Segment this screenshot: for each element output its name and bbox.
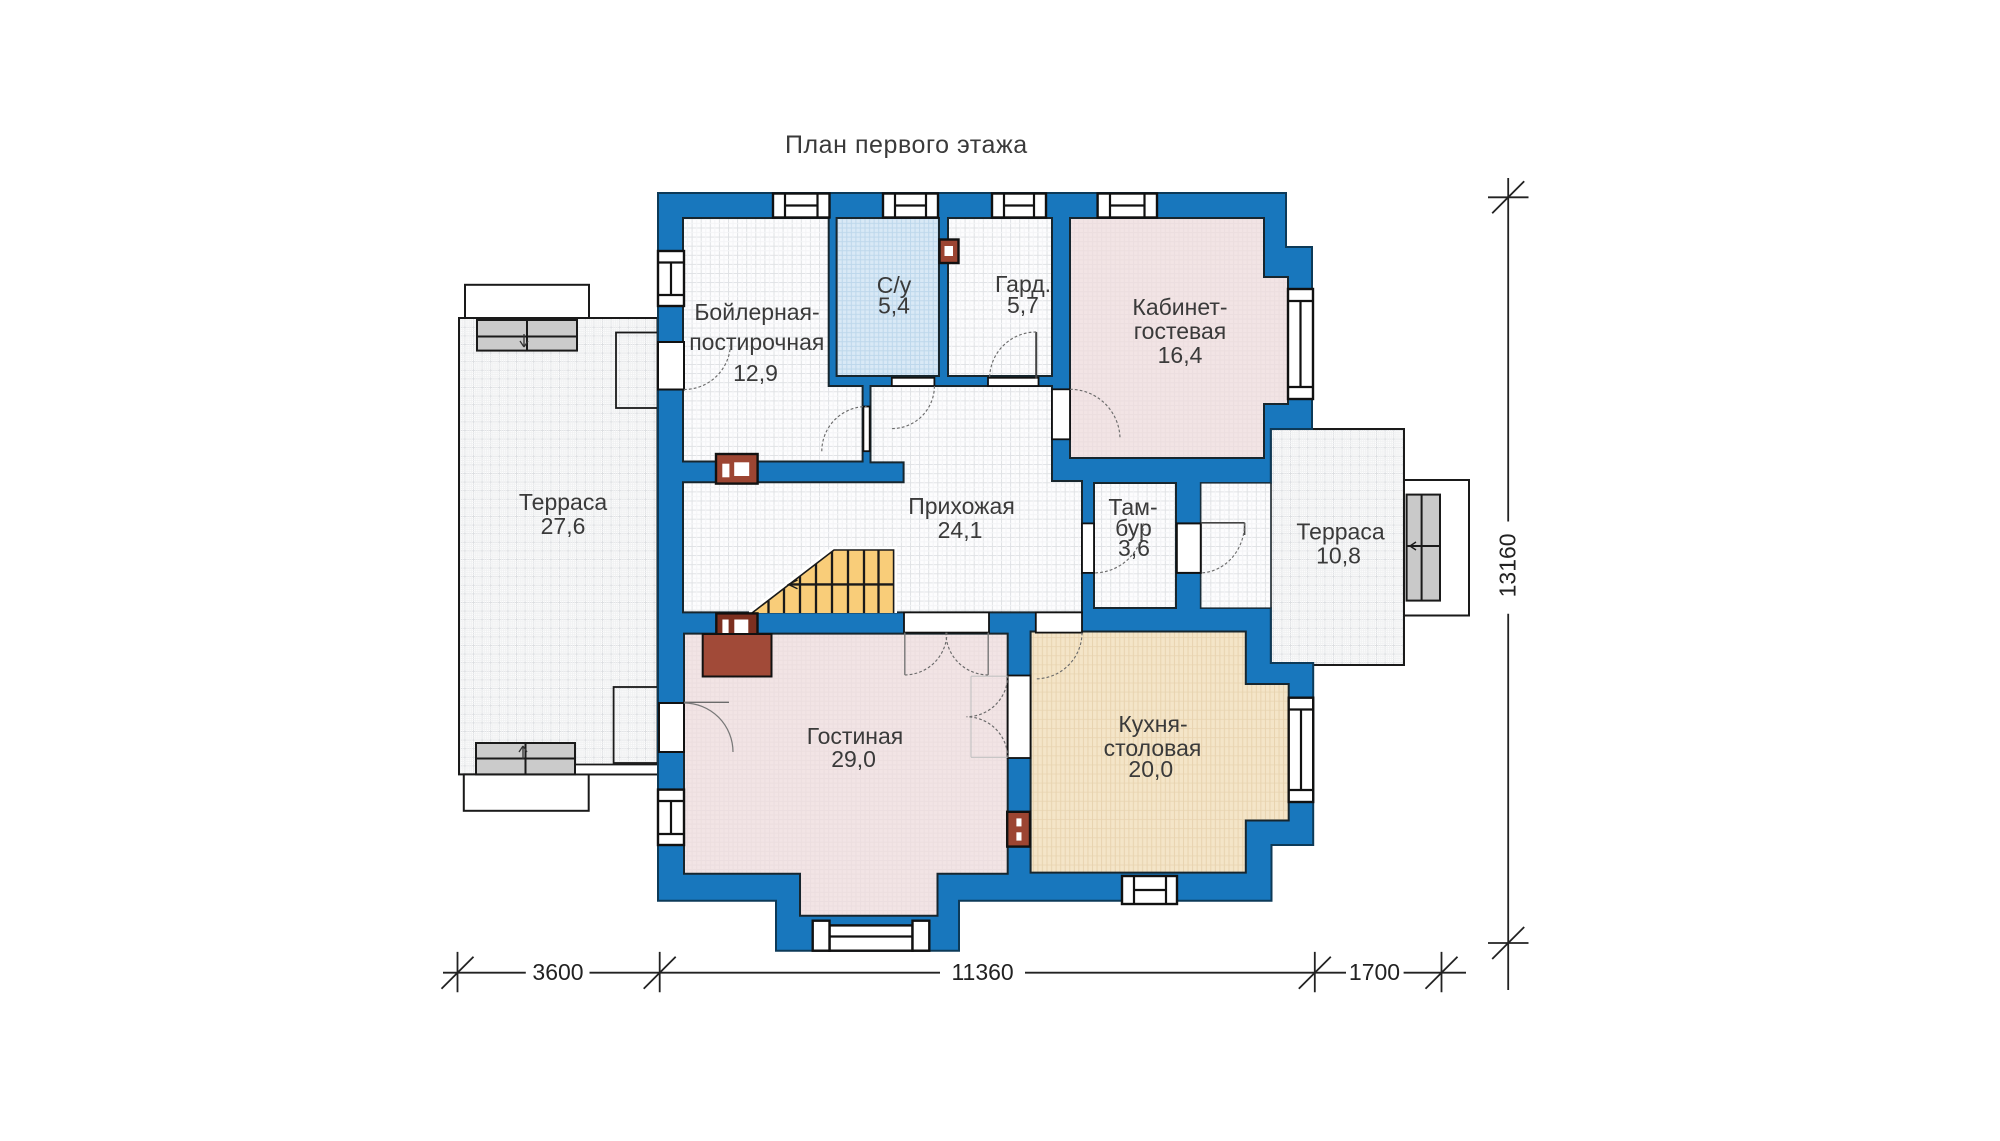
- svg-text:Терраса: Терраса: [1296, 519, 1384, 545]
- svg-text:12,9: 12,9: [733, 360, 778, 386]
- svg-text:Кабинет-: Кабинет-: [1132, 294, 1227, 320]
- svg-text:5,4: 5,4: [878, 293, 910, 319]
- svg-text:27,6: 27,6: [541, 513, 586, 539]
- svg-text:План первого этажа: План первого этажа: [785, 131, 1028, 159]
- svg-text:16,4: 16,4: [1158, 342, 1203, 368]
- svg-text:3,6: 3,6: [1118, 535, 1150, 561]
- svg-text:3600: 3600: [532, 959, 583, 985]
- svg-text:Кухня-: Кухня-: [1118, 711, 1187, 737]
- svg-text:11360: 11360: [951, 959, 1013, 985]
- svg-text:Прихожая: Прихожая: [908, 493, 1015, 519]
- svg-text:постирочная: постирочная: [689, 329, 824, 355]
- svg-text:Терраса: Терраса: [519, 489, 607, 515]
- svg-text:Бойлерная-: Бойлерная-: [694, 299, 819, 325]
- svg-text:10,8: 10,8: [1316, 543, 1361, 569]
- svg-text:5,7: 5,7: [1007, 292, 1039, 318]
- svg-text:24,1: 24,1: [938, 517, 983, 543]
- svg-text:29,0: 29,0: [831, 746, 876, 772]
- svg-text:13160: 13160: [1495, 533, 1521, 597]
- svg-text:1700: 1700: [1349, 959, 1400, 985]
- svg-text:гостевая: гостевая: [1134, 318, 1226, 344]
- svg-text:20,0: 20,0: [1128, 756, 1173, 782]
